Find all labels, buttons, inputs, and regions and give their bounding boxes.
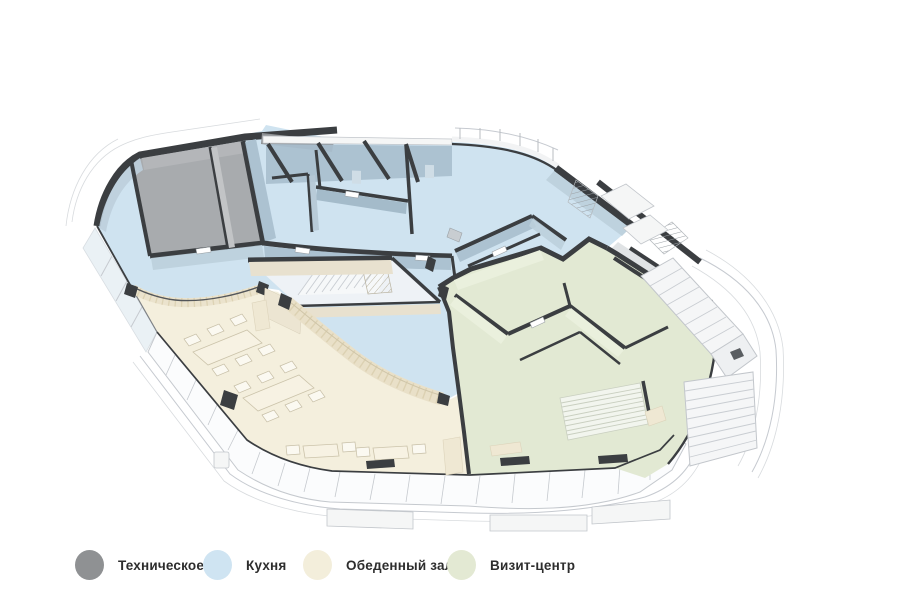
page: Техническое Кухня Обеденный зал Визит-це…	[0, 0, 900, 600]
legend-label-kitchen: Кухня	[246, 558, 286, 573]
legend-item-technical: Техническое	[75, 549, 204, 581]
legend-label-visit: Визит-центр	[490, 558, 575, 573]
legend-label-dining: Обеденный зал	[346, 558, 454, 573]
legend-swatch-technical	[75, 550, 104, 580]
legend-item-dining: Обеденный зал	[303, 549, 454, 581]
legend-swatch-dining	[303, 550, 332, 580]
legend-swatch-kitchen	[203, 550, 232, 580]
legend-item-kitchen: Кухня	[203, 549, 286, 581]
legend-label-technical: Техническое	[118, 558, 204, 573]
legend-item-visit: Визит-центр	[447, 549, 575, 581]
legend-swatch-visit	[447, 550, 476, 580]
legend: Техническое Кухня Обеденный зал Визит-це…	[0, 0, 900, 600]
